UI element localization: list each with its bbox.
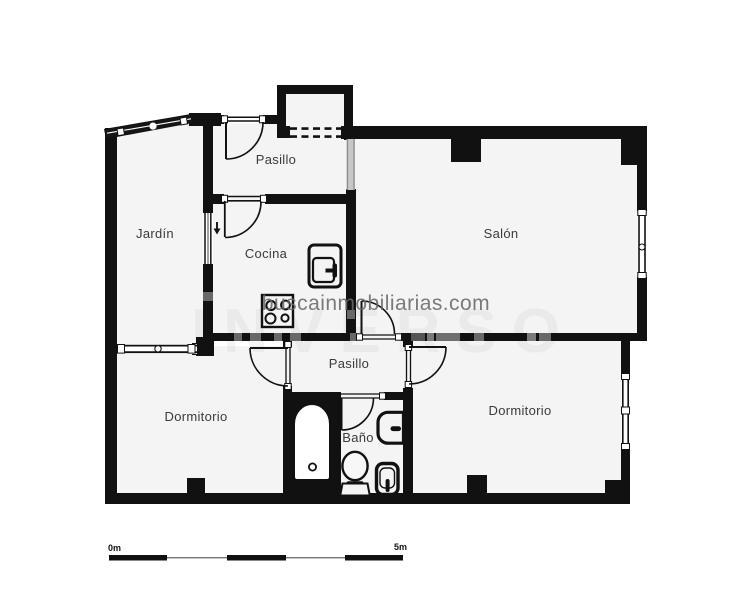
svg-text:0m: 0m: [108, 543, 121, 553]
svg-text:Baño: Baño: [342, 430, 374, 445]
svg-text:Dormitorio: Dormitorio: [489, 403, 552, 418]
svg-text:Salón: Salón: [484, 226, 519, 241]
svg-text:buscainmobiliarias.com: buscainmobiliarias.com: [262, 292, 490, 315]
svg-text:Pasillo: Pasillo: [256, 152, 296, 167]
svg-text:Pasillo: Pasillo: [329, 356, 369, 371]
svg-text:Cocina: Cocina: [245, 246, 288, 261]
svg-text:Dormitorio: Dormitorio: [165, 409, 228, 424]
svg-text:Jardín: Jardín: [136, 226, 174, 241]
svg-text:5m: 5m: [394, 542, 407, 552]
